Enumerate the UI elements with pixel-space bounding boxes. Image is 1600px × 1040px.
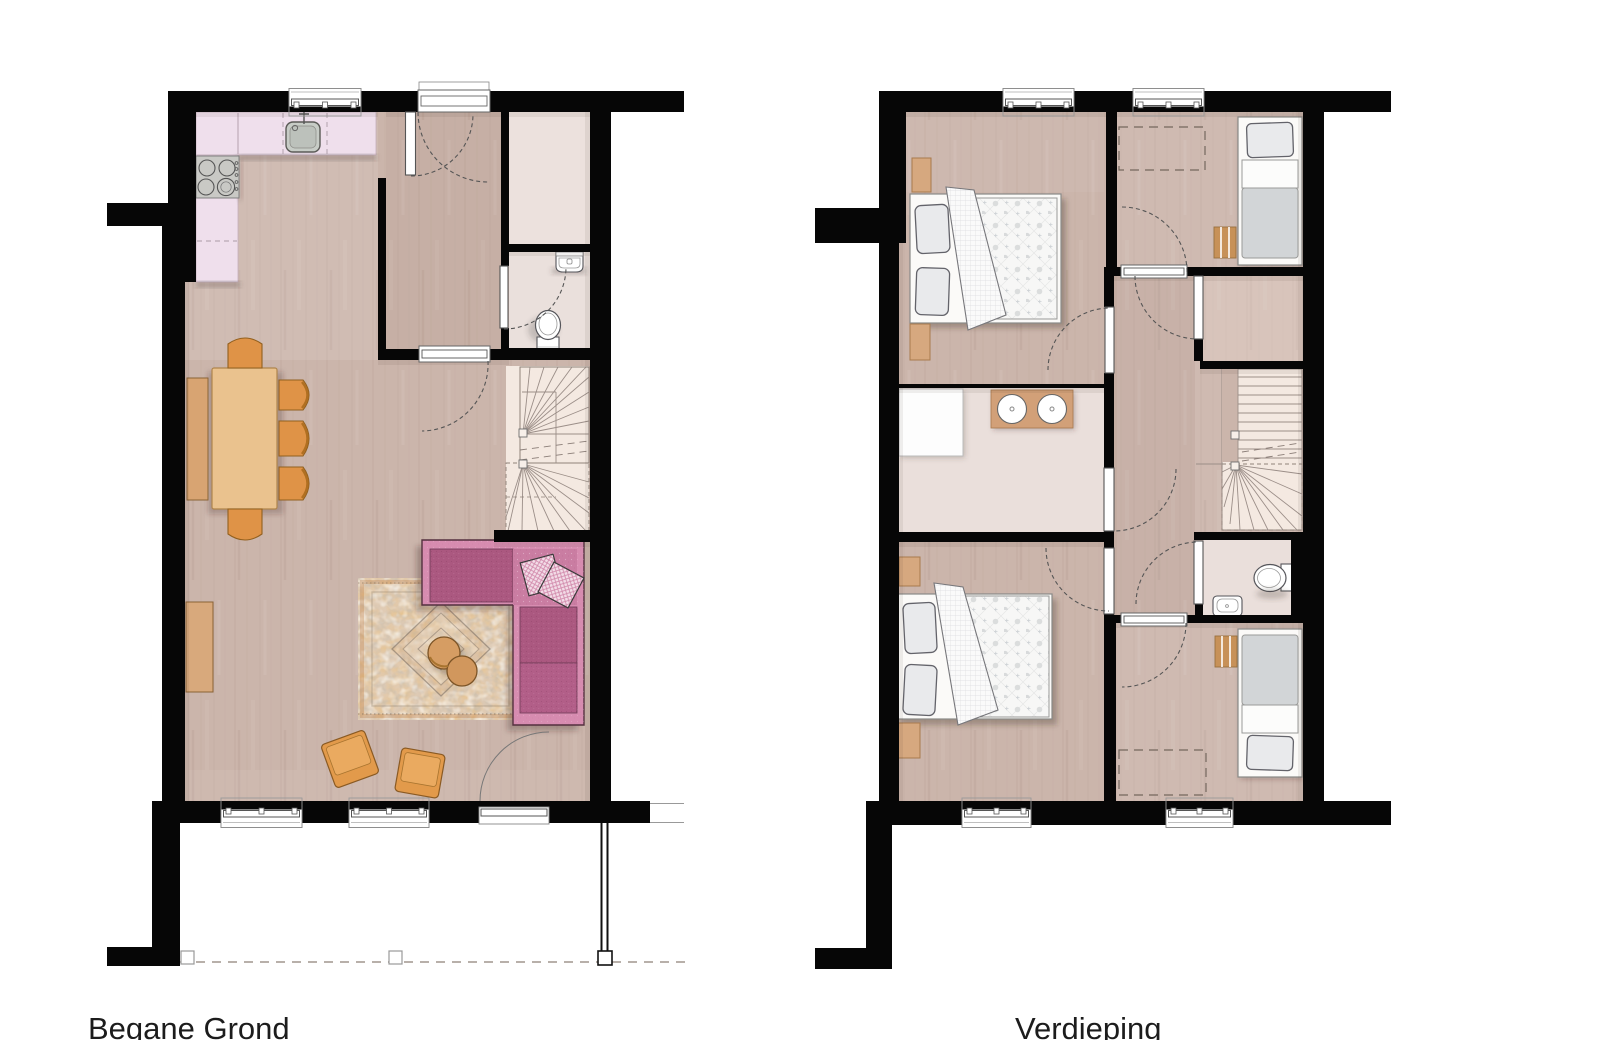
svg-text:Begane Grond: Begane Grond — [88, 1011, 290, 1040]
svg-text:Verdieping: Verdieping — [1015, 1011, 1162, 1040]
